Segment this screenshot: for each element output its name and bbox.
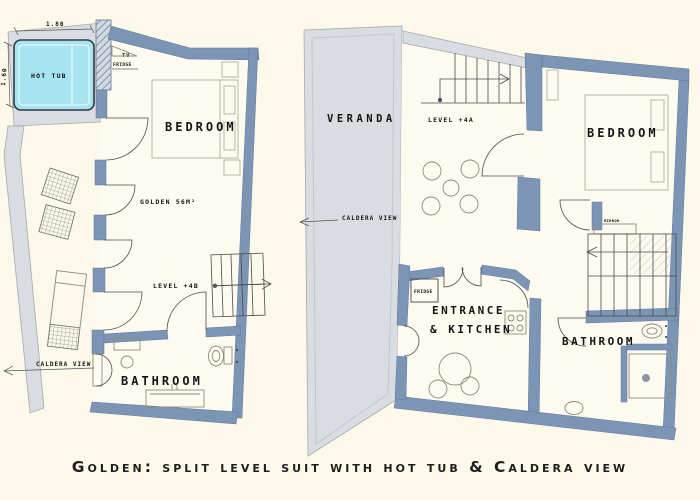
right-bathroom-label: BATHROOM: [562, 335, 635, 348]
hatched-wall-pier: [96, 20, 111, 90]
left-bedroom-label: BEDROOM: [165, 120, 237, 134]
right-bedroom-label: BEDROOM: [587, 126, 659, 140]
dim-width-label: 1.80: [46, 21, 64, 28]
floor-plan-canvas: HOT TUB 1.80 1.60: [0, 0, 700, 500]
mirror-label: MIRROR: [604, 218, 620, 223]
shower-drain: [642, 374, 650, 382]
caldera-view-label-right: CALDERA VIEW: [342, 215, 397, 222]
area-label: GOLDEN 56M²: [140, 198, 196, 206]
right-plan: MIRROR FRIDGE: [300, 26, 689, 456]
caldera-view-label-left: CALDERA VIEW: [36, 361, 91, 368]
veranda-label: VERANDA: [327, 113, 396, 125]
hot-tub-label: HOT TUB: [31, 72, 67, 80]
right-level-label: LEVEL +4A: [428, 116, 474, 124]
entrance-label-1: ENTRANCE: [432, 304, 505, 317]
left-bathroom-label: BATHROOM: [121, 374, 203, 388]
fridge-label-right: FRIDGE: [414, 289, 433, 295]
caption: Golden: split level suit with hot tub & …: [0, 458, 700, 476]
entrance-label-2: & KITCHEN: [430, 323, 512, 336]
left-level-label: LEVEL +4B: [153, 282, 199, 290]
veranda-strip: [304, 26, 402, 456]
hot-tub: HOT TUB: [14, 40, 94, 110]
fridge-label-left: FRIDGE: [113, 62, 132, 68]
